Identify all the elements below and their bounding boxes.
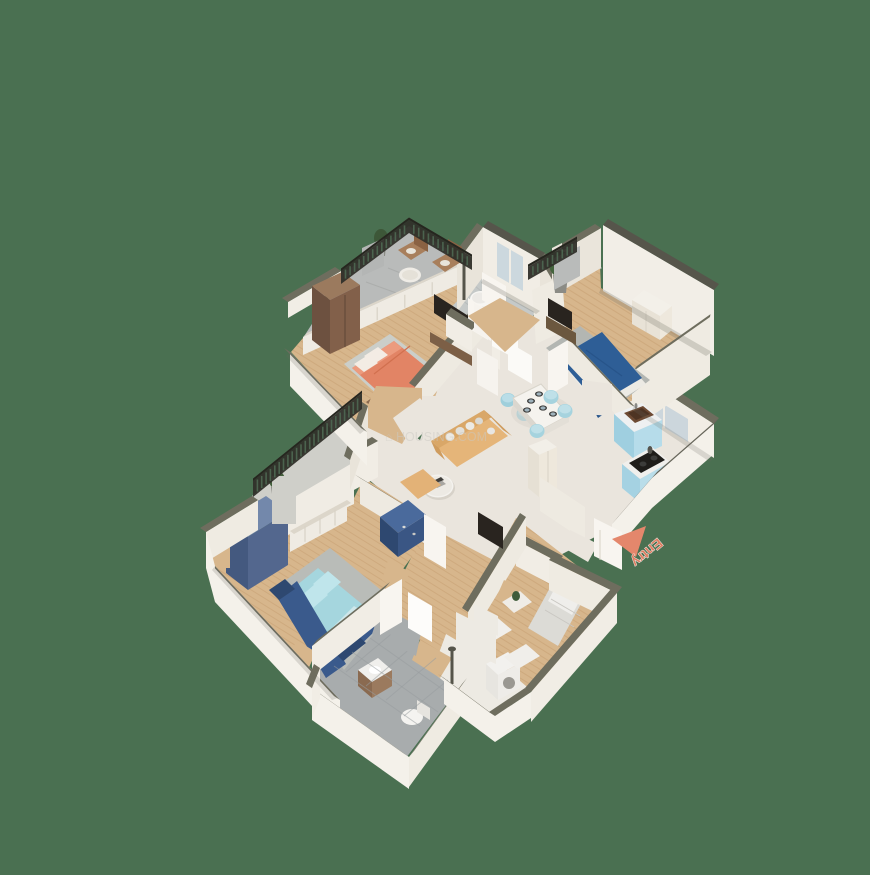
svg-text:⌂ HOUSING.COM: ⌂ HOUSING.COM [385, 430, 487, 444]
